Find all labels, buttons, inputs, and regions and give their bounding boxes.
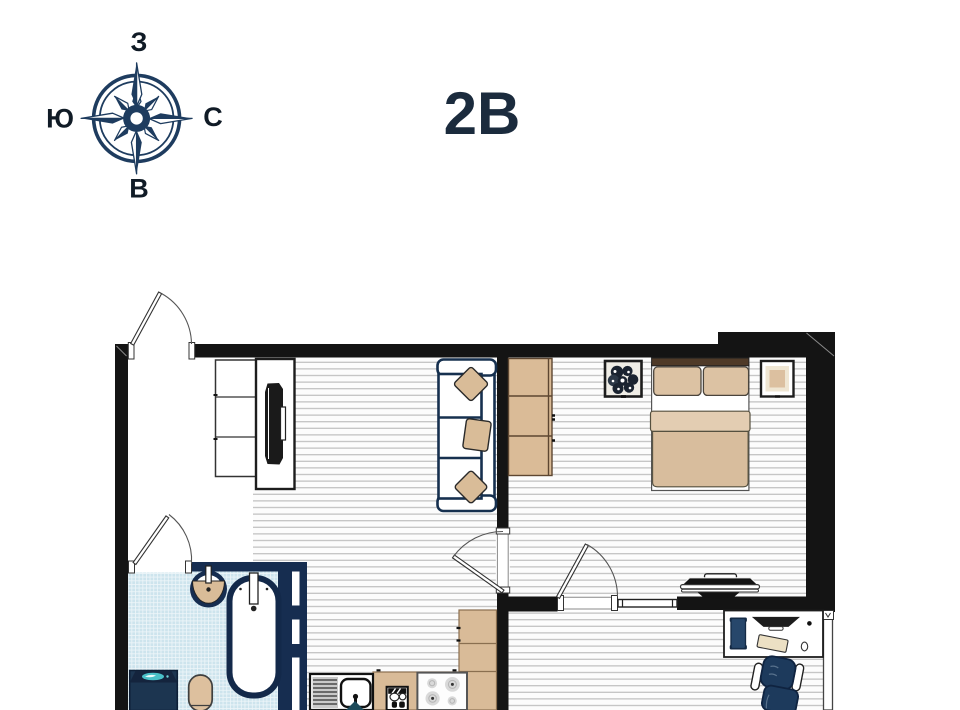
svg-text:2В: 2В xyxy=(444,80,521,147)
svg-text:Ю: Ю xyxy=(46,104,74,134)
svg-text:С: С xyxy=(203,102,223,132)
svg-text:В: В xyxy=(129,174,149,204)
svg-text:З: З xyxy=(130,27,147,57)
